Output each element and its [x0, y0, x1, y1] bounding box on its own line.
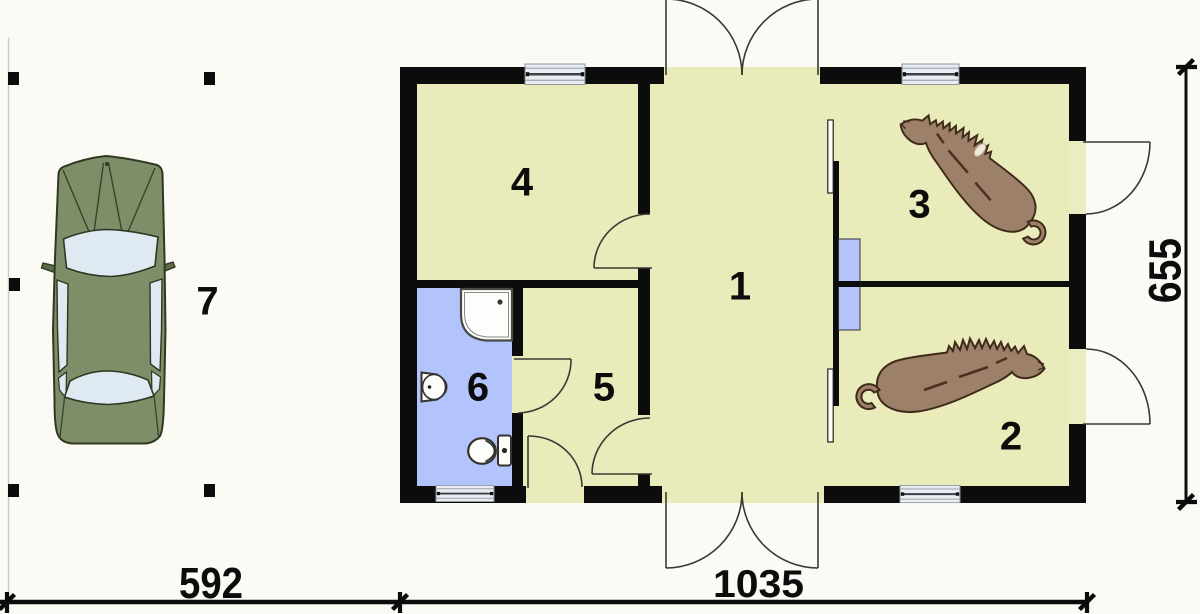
svg-text:5: 5 — [593, 366, 615, 410]
svg-text:655: 655 — [1140, 238, 1191, 303]
svg-text:1035: 1035 — [713, 563, 804, 606]
svg-text:3: 3 — [908, 183, 930, 227]
svg-text:7: 7 — [196, 280, 218, 324]
svg-text:1: 1 — [729, 265, 751, 309]
svg-text:2: 2 — [1000, 415, 1022, 459]
svg-text:592: 592 — [179, 559, 243, 608]
svg-text:6: 6 — [467, 366, 489, 410]
svg-text:4: 4 — [511, 161, 534, 205]
